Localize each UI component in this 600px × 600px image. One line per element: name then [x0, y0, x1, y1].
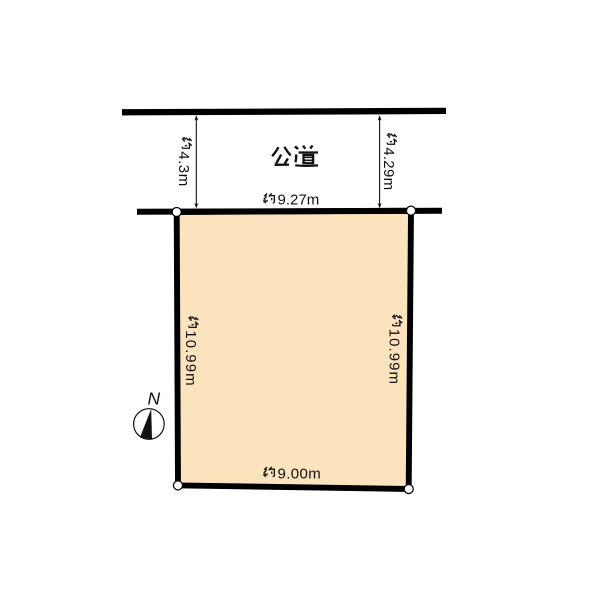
svg-text:4.3m: 4.3m [175, 151, 192, 187]
svg-text:9.00m: 9.00m [278, 465, 322, 482]
svg-text:4.29m: 4.29m [380, 147, 397, 190]
svg-text:9.27m: 9.27m [278, 192, 320, 209]
svg-text:10.99m: 10.99m [182, 330, 199, 386]
svg-text:10.99m: 10.99m [386, 329, 403, 385]
svg-text:N: N [148, 389, 161, 409]
